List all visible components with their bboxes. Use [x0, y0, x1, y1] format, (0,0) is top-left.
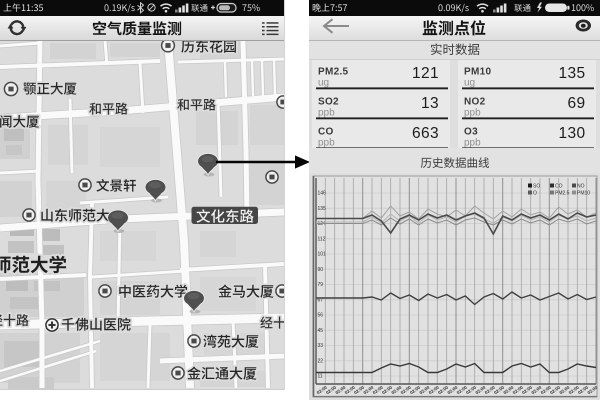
svg-text:33: 33 [318, 343, 324, 349]
svg-text:ppb: ppb [318, 108, 335, 119]
svg-text:101: 101 [318, 252, 327, 258]
svg-text:79: 79 [318, 282, 324, 288]
svg-text:NO: NO [577, 184, 585, 190]
svg-text:ug: ug [318, 78, 329, 89]
svg-text:90: 90 [318, 267, 324, 273]
svg-text:ppb: ppb [464, 138, 481, 149]
svg-text:SO2: SO2 [318, 97, 339, 108]
svg-text:PM10: PM10 [577, 191, 590, 197]
svg-text:PM2.5: PM2.5 [318, 67, 349, 78]
svg-text:130: 130 [558, 125, 585, 142]
svg-text:ug: ug [464, 78, 475, 89]
svg-text:ppb: ppb [464, 108, 481, 119]
svg-text:146: 146 [318, 191, 327, 197]
svg-text:45: 45 [318, 328, 324, 334]
svg-text:SO: SO [533, 184, 540, 190]
svg-text:CO: CO [555, 184, 563, 190]
svg-text:135: 135 [318, 206, 327, 212]
svg-text:663: 663 [412, 125, 439, 142]
svg-text:11: 11 [318, 374, 323, 380]
svg-text:ppb: ppb [318, 138, 335, 149]
svg-text:PM10: PM10 [464, 67, 491, 78]
svg-text:69: 69 [567, 95, 585, 112]
svg-text:PM2.5: PM2.5 [555, 191, 570, 197]
svg-text:112: 112 [318, 236, 326, 242]
svg-text:NO2: NO2 [464, 97, 486, 108]
svg-text:121: 121 [412, 65, 439, 82]
svg-text:56: 56 [318, 313, 324, 319]
svg-text:135: 135 [558, 65, 585, 82]
svg-text:22: 22 [318, 358, 324, 364]
svg-text:O: O [533, 191, 537, 197]
svg-text:O3: O3 [464, 127, 478, 138]
svg-text:CO: CO [318, 127, 334, 138]
svg-text:13: 13 [421, 95, 439, 112]
